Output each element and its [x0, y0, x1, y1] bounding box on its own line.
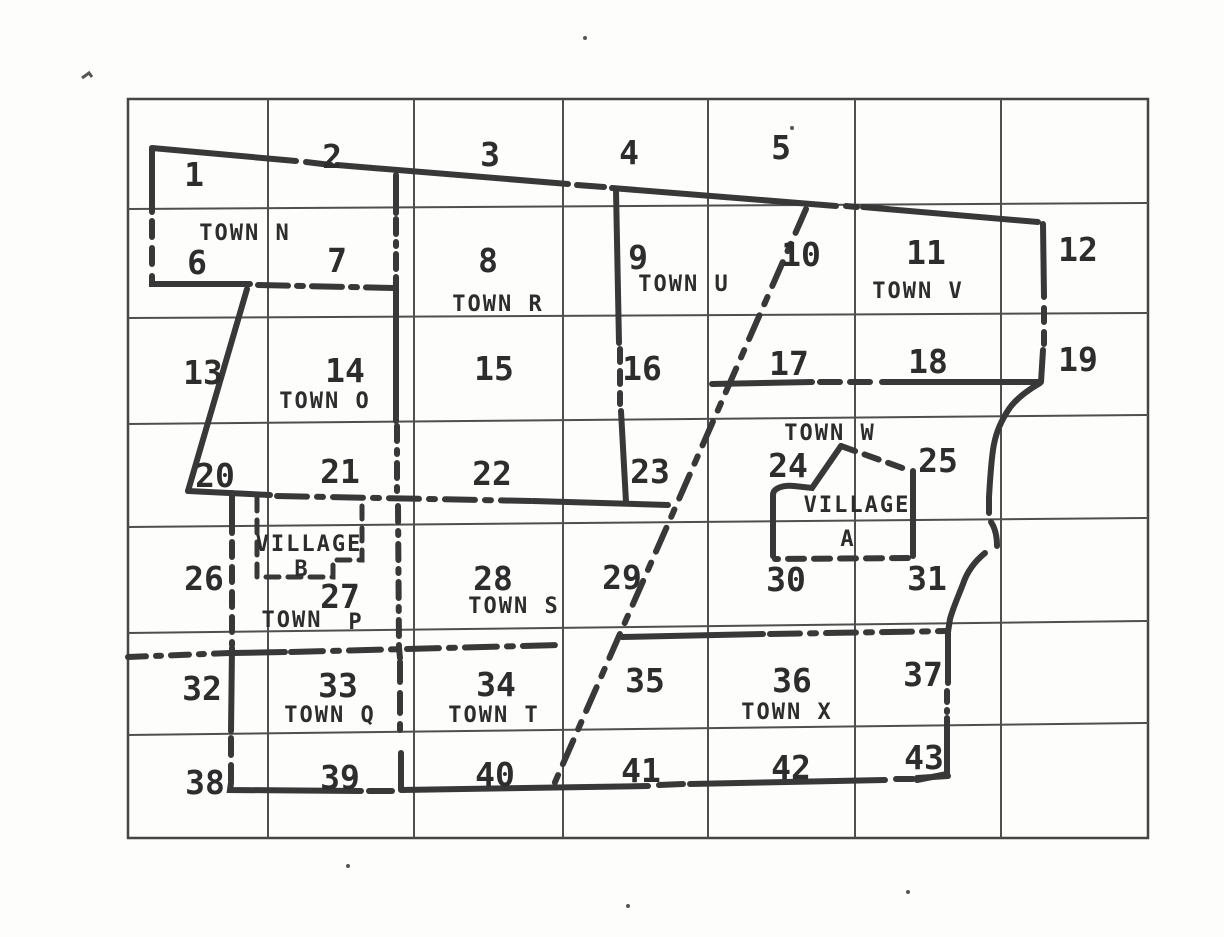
boundary-town-n-south-dashdot: [258, 285, 394, 288]
section-number-19: 19: [1058, 340, 1098, 379]
section-number-34: 34: [476, 665, 516, 704]
section-number-41: 41: [621, 751, 661, 790]
section-number-28: 28: [473, 559, 513, 598]
boundary-north-dash2: [577, 185, 604, 187]
boundary-pq-west-3: [231, 648, 232, 731]
town-label-n: TOWN N: [199, 221, 290, 246]
section-number-37: 37: [903, 655, 943, 694]
town-label-u: TOWN U: [638, 272, 729, 297]
town-label-w: TOWN W: [784, 421, 875, 446]
section-number-5: 5: [771, 128, 791, 167]
section-number-15: 15: [474, 349, 514, 388]
boundary-pq-row-solid: [233, 652, 285, 653]
boundary-east-v-solid2: [1041, 350, 1043, 382]
town-label-r: TOWN R: [452, 292, 543, 317]
section-number-29: 29: [602, 558, 642, 597]
section-number-23: 23: [630, 452, 670, 491]
section-number-26: 26: [184, 559, 224, 598]
town-label-p-letter: P: [348, 610, 363, 635]
section-number-18: 18: [908, 342, 948, 381]
section-number-40: 40: [475, 755, 515, 794]
section-number-43: 43: [904, 738, 944, 777]
district-map: 1234567891011121314151617181920212223242…: [0, 0, 1224, 937]
boundary-east-v-solid: [1043, 224, 1044, 297]
district-map-scan: 1234567891011121314151617181920212223242…: [0, 0, 1224, 937]
section-number-1: 1: [184, 155, 204, 194]
section-number-33: 33: [318, 666, 358, 705]
boundary-north-dash3: [846, 206, 857, 207]
section-number-36: 36: [772, 661, 812, 700]
section-number-16: 16: [622, 349, 662, 388]
boundary-t-south: [401, 786, 648, 790]
section-number-31: 31: [907, 559, 947, 598]
section-number-24: 24: [768, 446, 808, 485]
paper-background: [0, 0, 1224, 937]
village-label-b-line1: VILLAGE: [256, 532, 363, 557]
section-number-22: 22: [472, 454, 512, 493]
section-number-35: 35: [625, 661, 665, 700]
section-number-30: 30: [766, 560, 806, 599]
section-number-6: 6: [187, 243, 207, 282]
section-number-32: 32: [182, 669, 222, 708]
section-number-7: 7: [327, 241, 347, 280]
section-number-20: 20: [195, 456, 235, 495]
village-label-a-line2: A: [840, 527, 855, 552]
section-number-42: 42: [771, 748, 811, 787]
section-number-3: 3: [480, 135, 500, 174]
section-number-12: 12: [1058, 230, 1098, 269]
section-number-14: 14: [325, 351, 365, 390]
section-number-2: 2: [322, 137, 342, 176]
town-label-v: TOWN V: [872, 279, 963, 304]
section-number-11: 11: [906, 233, 946, 272]
boundary-u-west-1: [616, 190, 619, 343]
town-label-o: TOWN O: [279, 389, 370, 414]
section-number-10: 10: [781, 235, 821, 274]
section-number-39: 39: [320, 758, 360, 797]
section-number-38: 38: [185, 763, 225, 802]
village-label-b-line2: B: [294, 557, 309, 582]
town-label-p-word: TOWN: [262, 608, 323, 633]
boundary-pq-row-west: [128, 653, 230, 657]
section-number-21: 21: [320, 452, 360, 491]
town-label-x: TOWN X: [741, 700, 832, 725]
section-number-25: 25: [918, 441, 958, 480]
boundary-s-south-dash: [659, 784, 683, 785]
boundary-sx-row-solid: [622, 634, 763, 637]
town-label-t: TOWN T: [448, 703, 539, 728]
section-number-8: 8: [478, 241, 498, 280]
town-label-s: TOWN S: [468, 594, 559, 619]
boundary-op-2: [533, 501, 668, 505]
town-label-q: TOWN Q: [284, 703, 375, 728]
village-label-a-line1: VILLAGE: [804, 493, 911, 518]
section-number-17: 17: [769, 344, 809, 383]
section-number-4: 4: [619, 133, 639, 172]
section-number-13: 13: [183, 353, 223, 392]
